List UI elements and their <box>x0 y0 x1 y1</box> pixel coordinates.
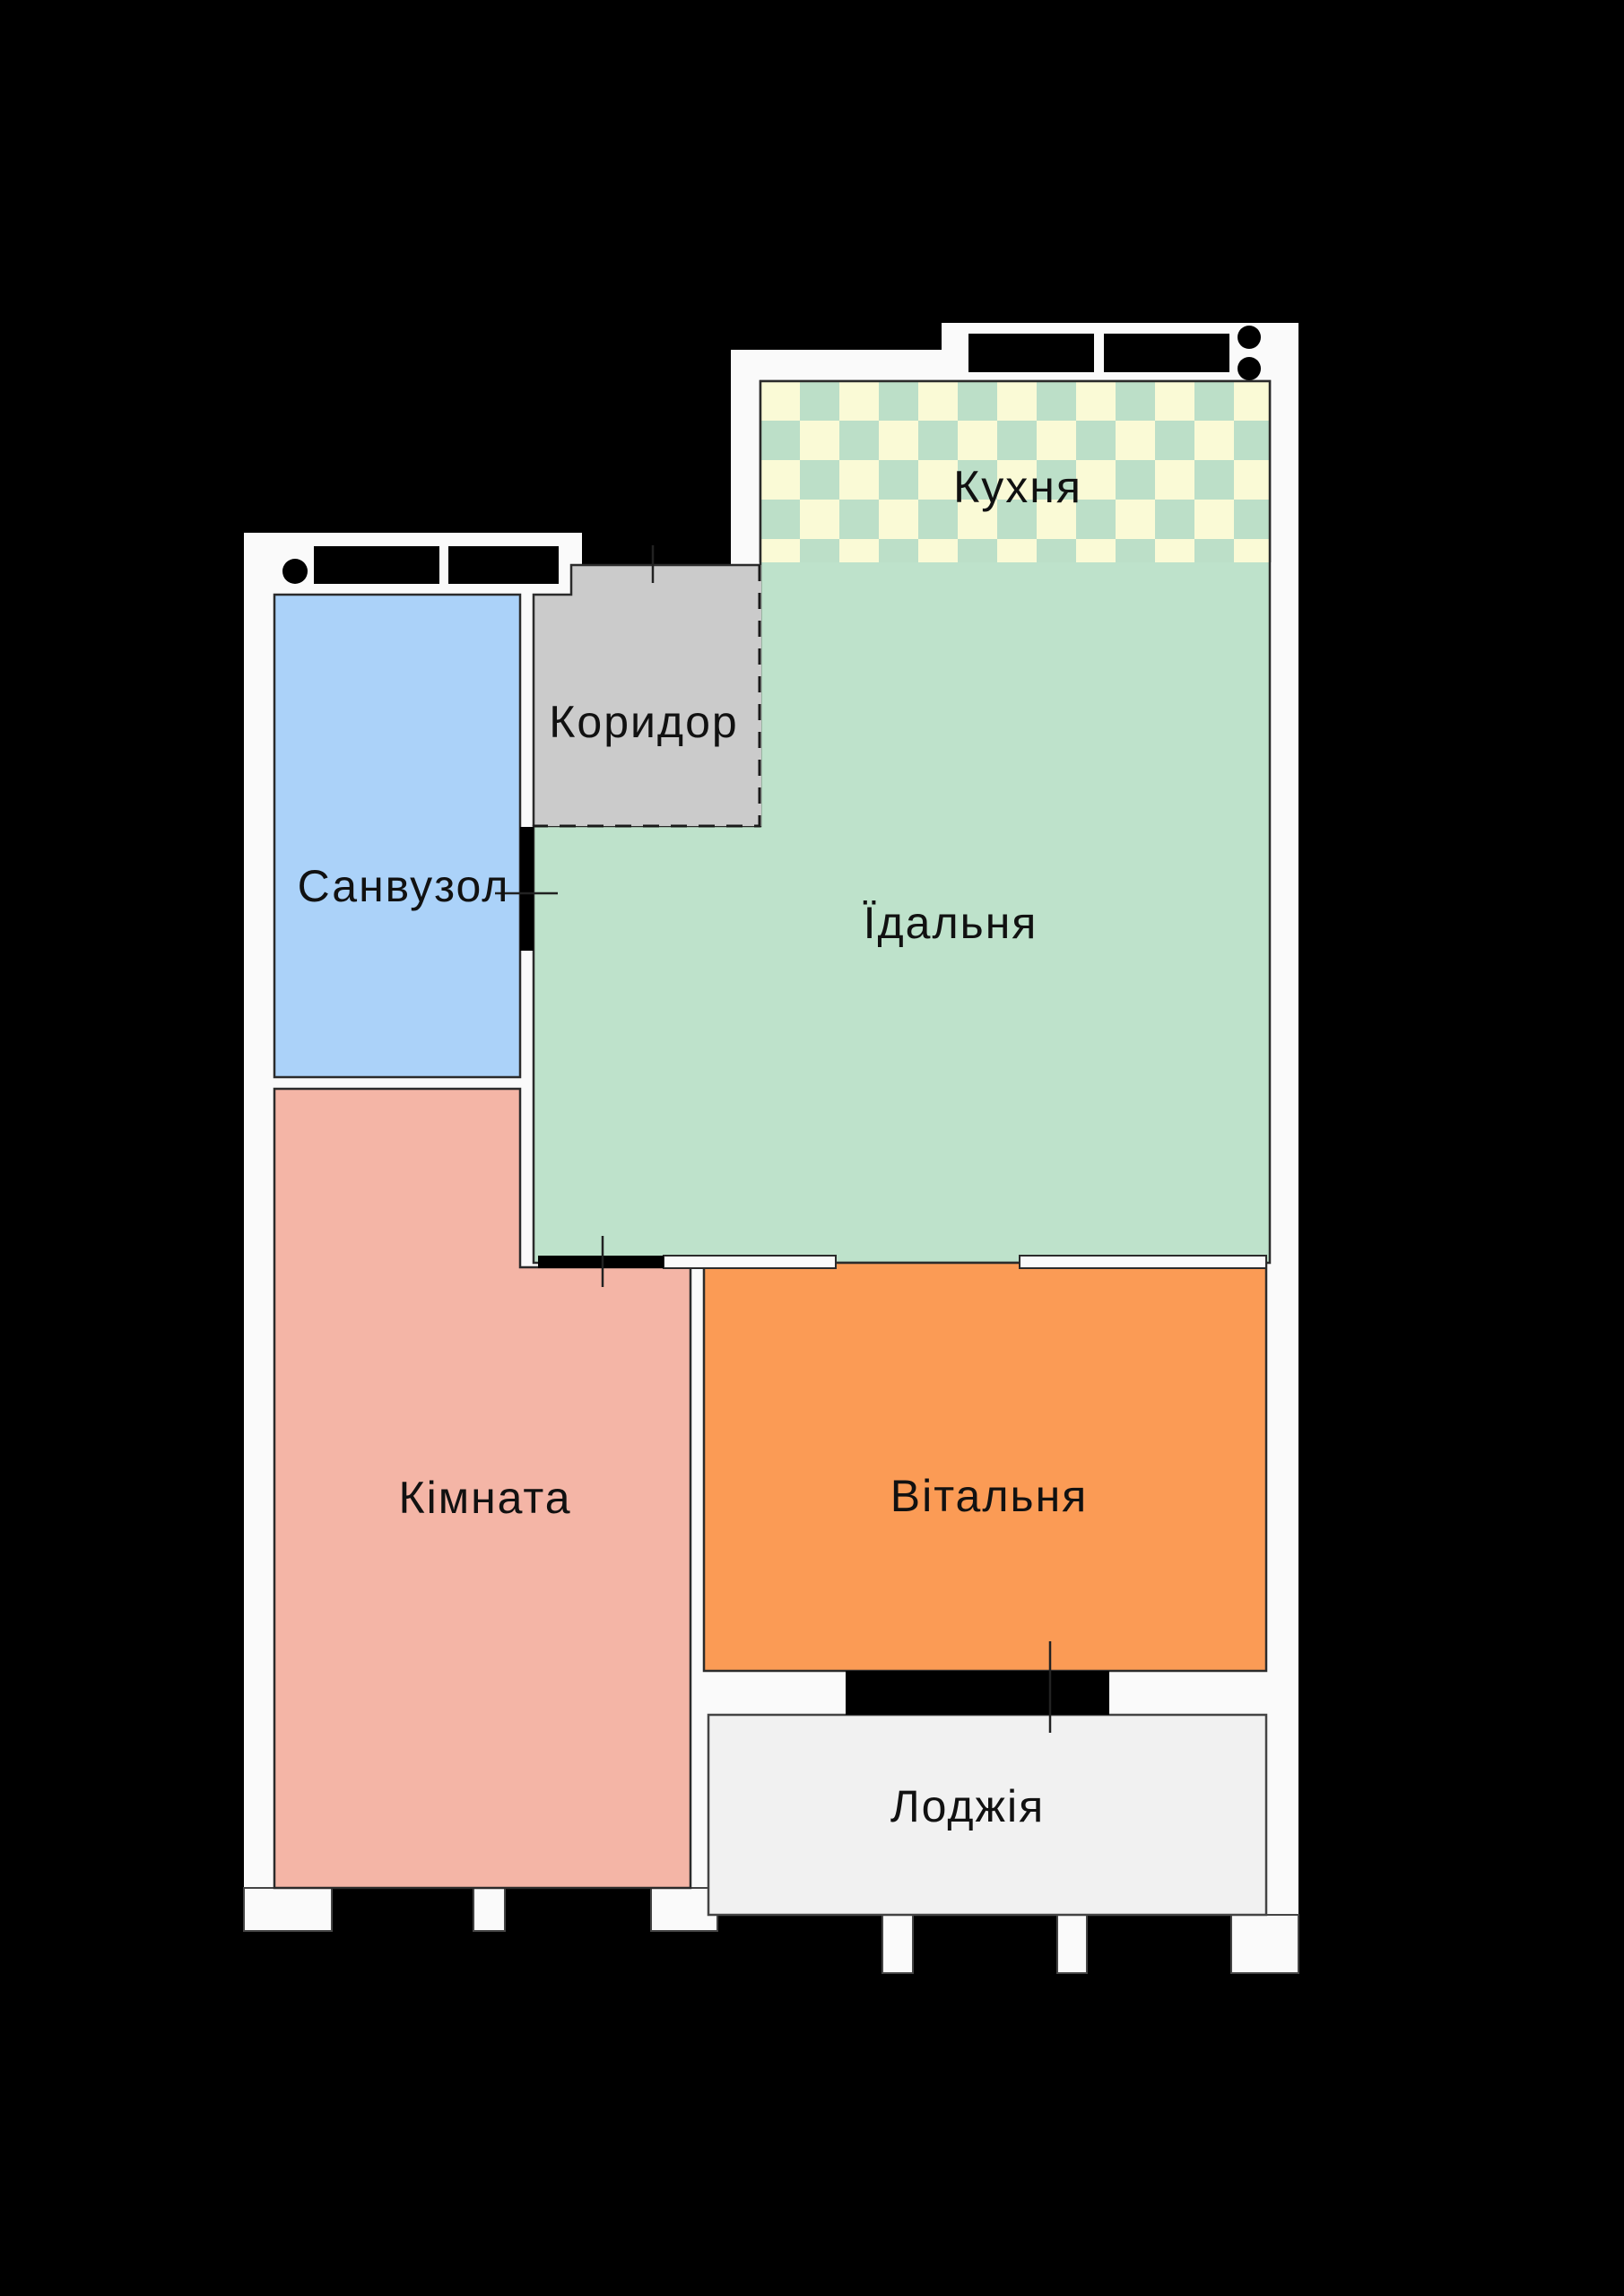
wall-bottom-segment <box>1057 1915 1087 1973</box>
window-symbol <box>968 334 1094 372</box>
label-bedroom: Кімната <box>398 1473 571 1523</box>
label-kitchen: Кухня <box>953 462 1082 512</box>
wall-bottom-right-corner <box>1231 1915 1298 1973</box>
wall-stub-dining-living-right <box>1020 1256 1266 1268</box>
floor-plan: Кухня Коридор Санвузол Їдальня Кімната В… <box>0 0 1624 2296</box>
wall-segment-bathroom-dining <box>520 827 534 951</box>
window-symbol <box>1104 334 1229 372</box>
wall-bottom-segment <box>244 1888 332 1931</box>
wall-bottom-segment <box>882 1915 913 1973</box>
room-living <box>704 1263 1266 1671</box>
wall-segment-dining-bedroom <box>538 1256 664 1268</box>
wall-segment-living-loggia <box>846 1671 1109 1715</box>
label-bathroom: Санвузол <box>298 861 510 911</box>
wall-bottom-segment <box>473 1888 505 1931</box>
label-dining: Їдальня <box>864 898 1038 948</box>
label-loggia: Лоджія <box>890 1781 1045 1831</box>
label-corridor: Коридор <box>549 697 738 747</box>
pipe-symbol <box>1238 326 1261 349</box>
label-living: Вітальня <box>890 1471 1089 1521</box>
room-corridor <box>534 565 761 826</box>
pipe-symbol <box>282 559 308 584</box>
window-symbol <box>314 546 439 584</box>
pipe-symbol <box>1238 357 1261 380</box>
window-symbol <box>448 546 559 584</box>
room-bathroom <box>274 595 520 1077</box>
wall-stub-dining-living-left <box>664 1256 836 1268</box>
